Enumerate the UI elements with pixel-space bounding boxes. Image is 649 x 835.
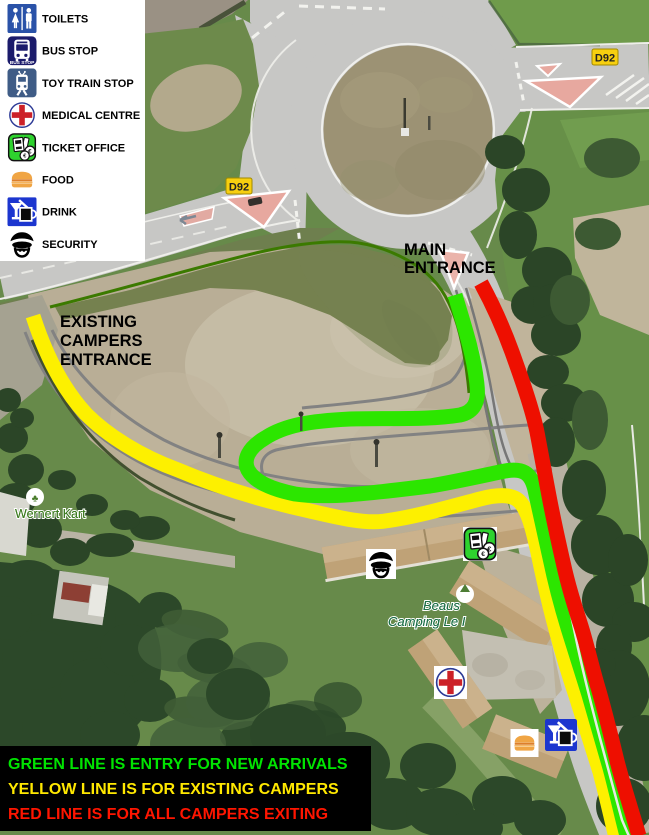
svg-text:MAIN: MAIN bbox=[404, 241, 446, 259]
svg-text:MEDICAL CENTRE: MEDICAL CENTRE bbox=[42, 110, 140, 122]
svg-text:CAMPERS: CAMPERS bbox=[60, 332, 143, 350]
svg-text:D92: D92 bbox=[229, 182, 249, 194]
svg-text:Wernert Kart: Wernert Kart bbox=[15, 507, 86, 521]
svg-text:YELLOW LINE IS FOR EXISTING CA: YELLOW LINE IS FOR EXISTING CAMPERS bbox=[8, 781, 339, 798]
svg-text:D92: D92 bbox=[595, 53, 615, 65]
svg-text:Camping Le I: Camping Le I bbox=[388, 614, 466, 629]
svg-text:SECURITY: SECURITY bbox=[42, 239, 98, 251]
svg-text:BUS STOP: BUS STOP bbox=[42, 46, 98, 58]
svg-text:GREEN LINE IS ENTRY FOR NEW AR: GREEN LINE IS ENTRY FOR NEW ARRIVALS bbox=[8, 756, 348, 773]
svg-text:TOY TRAIN STOP: TOY TRAIN STOP bbox=[42, 78, 134, 90]
svg-text:ENTRANCE: ENTRANCE bbox=[60, 351, 152, 369]
svg-text:RED LINE IS FOR ALL CAMPERS EX: RED LINE IS FOR ALL CAMPERS EXITING bbox=[8, 806, 328, 823]
svg-text:♣: ♣ bbox=[32, 494, 39, 505]
svg-text:TOILETS: TOILETS bbox=[42, 14, 88, 26]
svg-text:EXISTING: EXISTING bbox=[60, 313, 137, 331]
svg-text:TICKET OFFICE: TICKET OFFICE bbox=[42, 142, 125, 154]
svg-text:ENTRANCE: ENTRANCE bbox=[404, 259, 496, 277]
svg-text:Beaus: Beaus bbox=[423, 598, 460, 613]
svg-text:DRINK: DRINK bbox=[42, 207, 77, 219]
svg-text:FOOD: FOOD bbox=[42, 175, 74, 187]
